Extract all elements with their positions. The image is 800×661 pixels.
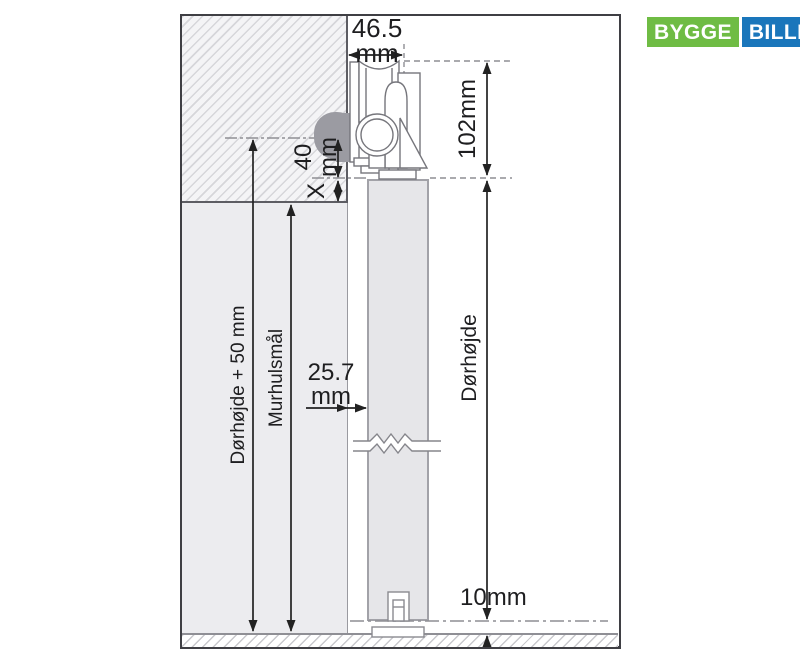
dim-text-track-width: 46.5 mm	[342, 16, 412, 67]
dim-text-overlap: X	[305, 161, 329, 221]
floor-guide-plate	[372, 627, 424, 637]
dim-text-wall-to-door: 25.7 mm	[299, 361, 363, 408]
dim-wall-to-door-value: 25.7	[299, 361, 363, 385]
door-top-fixing-plate	[379, 170, 416, 179]
diagram-linework	[0, 0, 800, 661]
label-wall-opening: Murhulsmål	[265, 288, 289, 468]
dim-text-floor-gap: 10mm	[460, 586, 527, 610]
label-door-height-plus-50: Dørhøjde + 50 mm	[227, 275, 251, 495]
brand-logo-billigt: BILLIGT	[742, 17, 800, 47]
adjustment-wheel-inner	[361, 119, 393, 151]
dim-text-fitting-height: 102mm	[456, 59, 480, 179]
brand-logo-bygge: BYGGE	[647, 17, 739, 47]
floor-guide	[372, 592, 424, 637]
wall-mount-plate	[350, 62, 359, 162]
door-break-symbol	[353, 434, 441, 453]
brand-logo: BYGGE BILLIGT	[647, 17, 800, 47]
diagram-canvas: 46.5 mm 102mm 40 mm X 25.7 mm 10mm Dørhø…	[0, 0, 800, 661]
dim-wall-to-door-unit: mm	[299, 385, 363, 409]
guide-pin	[393, 600, 404, 621]
label-door-height: Dørhøjde	[458, 268, 482, 448]
roller-mechanism	[350, 61, 427, 179]
dim-track-width-unit: mm	[342, 41, 412, 66]
